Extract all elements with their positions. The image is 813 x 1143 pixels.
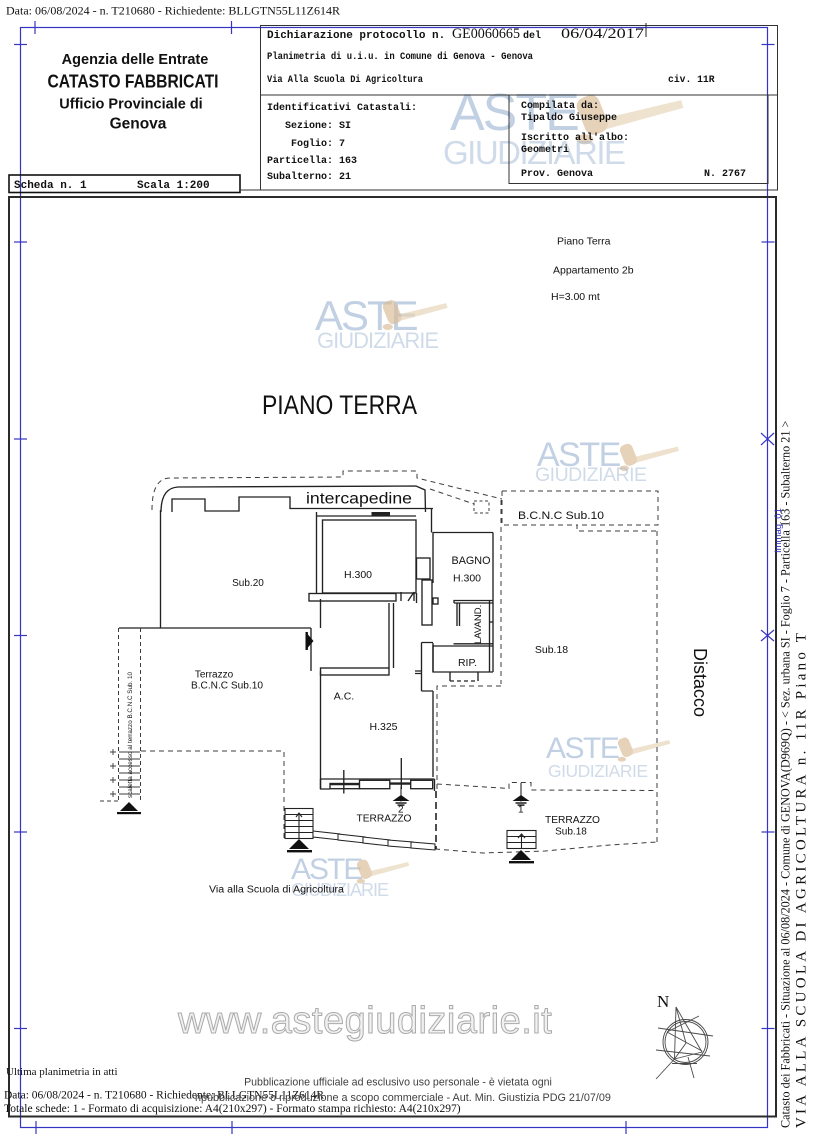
svg-text:N: N <box>657 992 669 1011</box>
svg-text:06/04/2017: 06/04/2017 <box>561 26 644 42</box>
svg-text:ripubblicazione o riproduzione: ripubblicazione o riproduzione a scopo c… <box>195 1092 611 1104</box>
svg-text:VIA ALLA SCUOLA DI AGRICOLTURA: VIA ALLA SCUOLA DI AGRICOLTURA n. 11R Pi… <box>794 633 810 1128</box>
svg-text:GIUDIZIARIE: GIUDIZIARIE <box>548 761 648 781</box>
svg-text:scaletta accesso al terrazzo B: scaletta accesso al terrazzo B.C.N.C Sub… <box>127 672 134 798</box>
svg-text:Ultima planimetria in atti: Ultima planimetria in atti <box>6 1066 118 1078</box>
svg-text:Foglio: 7: Foglio: 7 <box>291 138 345 150</box>
svg-text:BAGNO: BAGNO <box>452 555 491 567</box>
svg-text:Subalterno: 21: Subalterno: 21 <box>267 171 351 183</box>
svg-text:Planimetria di u.i.u. in Comun: Planimetria di u.i.u. in Comune di Genov… <box>267 51 533 62</box>
svg-text:Iscritto all'albo:: Iscritto all'albo: <box>521 132 629 144</box>
svg-text:Via Alla Scuola Di Agricoltura: Via Alla Scuola Di Agricoltura <box>267 74 423 85</box>
svg-text:H.325: H.325 <box>369 721 397 733</box>
svg-text:Pubblicazione ufficiale ad esc: Pubblicazione ufficiale ad esclusivo uso… <box>244 1077 552 1089</box>
svg-text:intercapedine: intercapedine <box>306 491 412 508</box>
svg-text:B.C.N.C Sub.10: B.C.N.C Sub.10 <box>191 681 263 692</box>
svg-text:Via alla Scuola di Agricoltur: Via alla Scuola di Agricoltura <box>209 885 345 896</box>
svg-text:A.C.: A.C. <box>334 691 354 703</box>
svg-text:www.astegiudiziarie.it: www.astegiudiziarie.it <box>177 1000 552 1042</box>
svg-text:RIP.: RIP. <box>458 657 477 669</box>
svg-text:Distacco: Distacco <box>690 648 710 717</box>
svg-text:PIANO TERRA: PIANO TERRA <box>262 390 417 420</box>
svg-text:Sub.18: Sub.18 <box>535 644 568 656</box>
svg-text:Terrazzo: Terrazzo <box>195 670 234 681</box>
svg-text:H.300: H.300 <box>453 573 481 585</box>
svg-text:Dichiarazione protocollo n.: Dichiarazione protocollo n. <box>267 30 445 42</box>
svg-text:Immag. 01: Immag. 01 <box>773 508 784 553</box>
svg-text:Piano Terra: Piano Terra <box>557 236 611 248</box>
svg-text:Geometri: Geometri <box>521 144 569 156</box>
svg-text:Particella: 163: Particella: 163 <box>267 155 357 167</box>
svg-text:Compilata da:: Compilata da: <box>521 100 599 112</box>
svg-text:Identificativi Catastali:: Identificativi Catastali: <box>267 102 417 114</box>
svg-text:Data: 06/08/2024 - n. T210680: Data: 06/08/2024 - n. T210680 - Richiede… <box>6 4 340 18</box>
svg-text:H.300: H.300 <box>344 569 372 581</box>
svg-text:TERRAZZO: TERRAZZO <box>357 814 412 825</box>
svg-text:del: del <box>523 30 541 42</box>
svg-text:B.C.N.C Sub.10: B.C.N.C Sub.10 <box>518 510 604 522</box>
svg-text:Sezione: SI: Sezione: SI <box>285 120 351 132</box>
svg-text:GE0060665: GE0060665 <box>452 26 520 42</box>
svg-text:Ufficio Provinciale di: Ufficio Provinciale di <box>59 97 202 113</box>
svg-text:Genova: Genova <box>110 116 167 133</box>
svg-text:Tipaldo Giuseppe: Tipaldo Giuseppe <box>521 112 617 124</box>
svg-text:CATASTO FABBRICATI: CATASTO FABBRICATI <box>48 71 219 92</box>
svg-text:N. 2767: N. 2767 <box>704 169 746 180</box>
svg-text:Totale schede: 1 - Formato di: Totale schede: 1 - Formato di acquisizio… <box>4 1103 461 1115</box>
svg-text:GIUDIZIARIE: GIUDIZIARIE <box>535 464 647 486</box>
svg-text:H=3.00 mt: H=3.00 mt <box>551 291 600 303</box>
svg-text:Agenzia delle Entrate: Agenzia delle Entrate <box>62 52 209 68</box>
svg-text:Prov. Genova: Prov. Genova <box>521 169 593 180</box>
svg-text:TERRAZZO: TERRAZZO <box>545 815 600 826</box>
svg-text:Appartamento 2b: Appartamento 2b <box>553 265 634 277</box>
svg-text:civ. 11R: civ. 11R <box>668 74 715 85</box>
svg-text:Sub.18: Sub.18 <box>555 827 587 838</box>
svg-text:LAVAND.: LAVAND. <box>473 605 484 644</box>
svg-text:Scheda n. 1: Scheda n. 1 <box>14 180 87 192</box>
svg-text:Scala 1:200: Scala 1:200 <box>137 180 210 192</box>
svg-text:Sub.20: Sub.20 <box>232 578 264 589</box>
svg-text:1: 1 <box>518 805 524 816</box>
svg-text:GIUDIZIARIE: GIUDIZIARIE <box>317 328 438 353</box>
